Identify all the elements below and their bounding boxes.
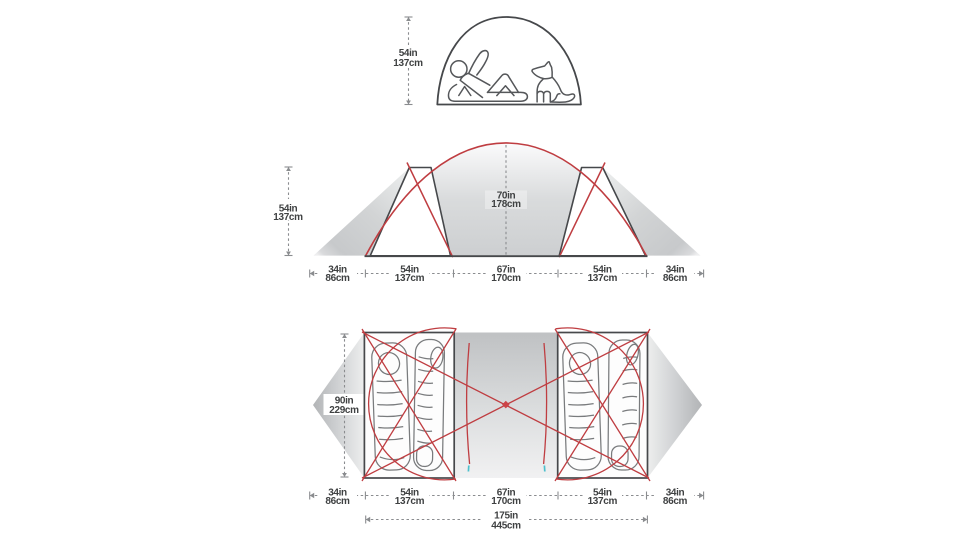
svg-text:137cm: 137cm — [588, 273, 618, 284]
svg-text:170cm: 170cm — [491, 273, 521, 284]
svg-text:445cm: 445cm — [491, 520, 521, 531]
svg-text:137cm: 137cm — [395, 273, 425, 284]
svg-text:229cm: 229cm — [329, 405, 359, 416]
svg-text:86cm: 86cm — [663, 496, 688, 507]
svg-text:137cm: 137cm — [393, 58, 423, 69]
svg-text:137cm: 137cm — [395, 496, 425, 507]
svg-text:86cm: 86cm — [663, 273, 688, 284]
svg-text:86cm: 86cm — [325, 496, 350, 507]
svg-text:170cm: 170cm — [491, 496, 521, 507]
svg-text:137cm: 137cm — [588, 496, 618, 507]
svg-text:86cm: 86cm — [325, 273, 350, 284]
svg-text:137cm: 137cm — [273, 212, 303, 223]
svg-text:178cm: 178cm — [491, 199, 521, 210]
